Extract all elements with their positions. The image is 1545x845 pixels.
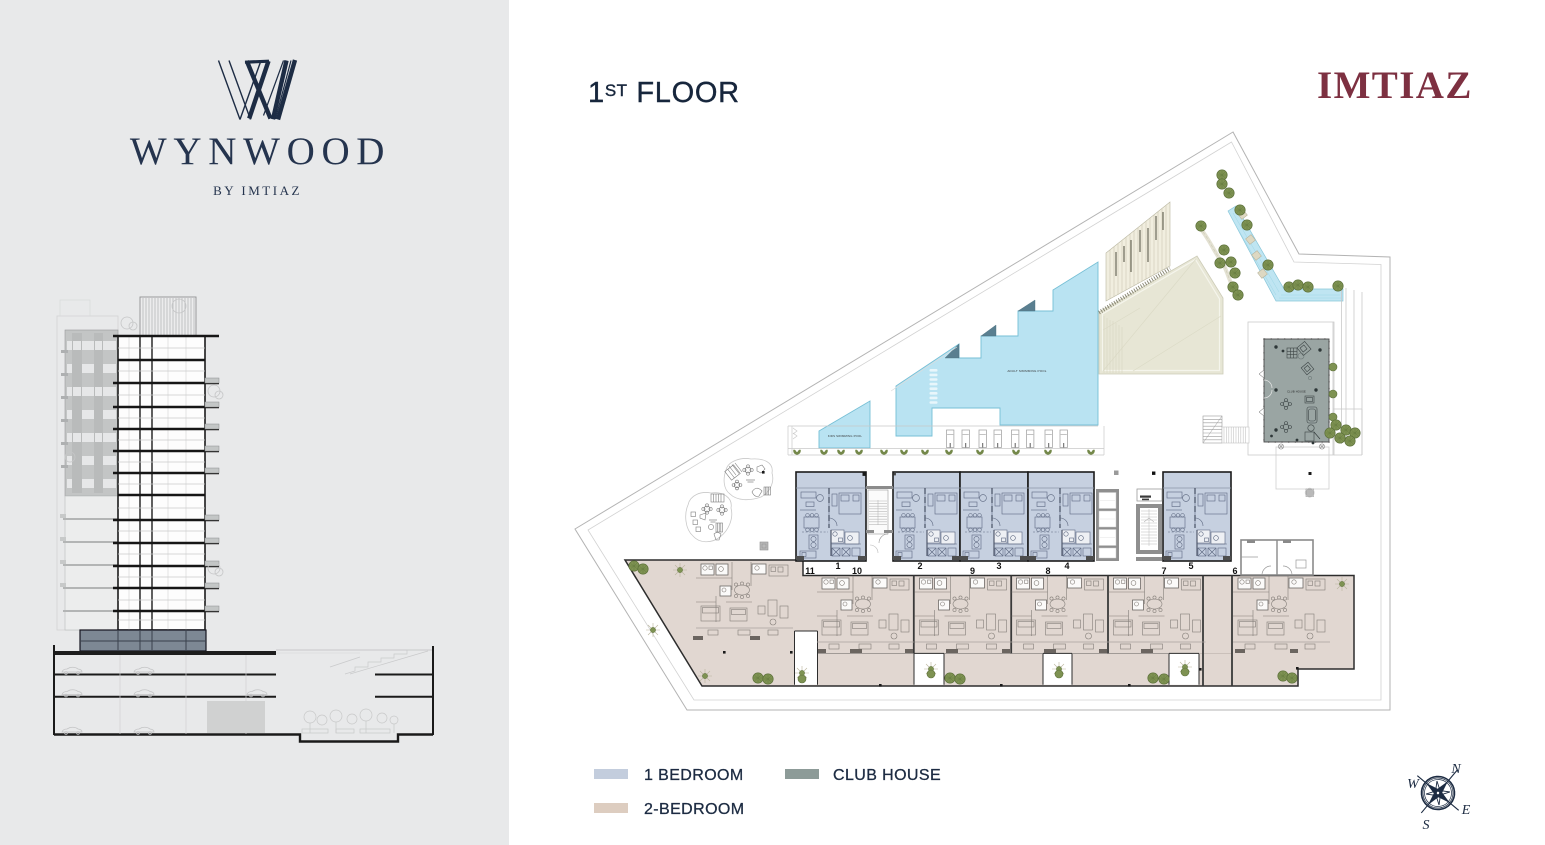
svg-text:11: 11 — [805, 566, 815, 576]
svg-text:W: W — [1407, 777, 1420, 792]
svg-text:S: S — [1423, 818, 1430, 833]
svg-text:10: 10 — [852, 566, 862, 576]
svg-text:E: E — [1461, 803, 1471, 818]
svg-text:CLUB HOUSE: CLUB HOUSE — [1287, 390, 1306, 394]
svg-text:8: 8 — [1045, 566, 1050, 576]
svg-text:4: 4 — [1064, 561, 1069, 571]
svg-text:ADULT SWIMMING POOL: ADULT SWIMMING POOL — [1007, 369, 1046, 373]
svg-text:KIDS SWIMMING POOL: KIDS SWIMMING POOL — [828, 434, 863, 438]
svg-text:1: 1 — [835, 561, 840, 571]
svg-text:2: 2 — [917, 561, 922, 571]
svg-text:7: 7 — [1161, 566, 1166, 576]
svg-text:5: 5 — [1188, 561, 1193, 571]
svg-text:3: 3 — [996, 561, 1001, 571]
svg-text:9: 9 — [970, 566, 975, 576]
svg-text:6: 6 — [1232, 566, 1237, 576]
svg-text:N: N — [1450, 762, 1461, 777]
